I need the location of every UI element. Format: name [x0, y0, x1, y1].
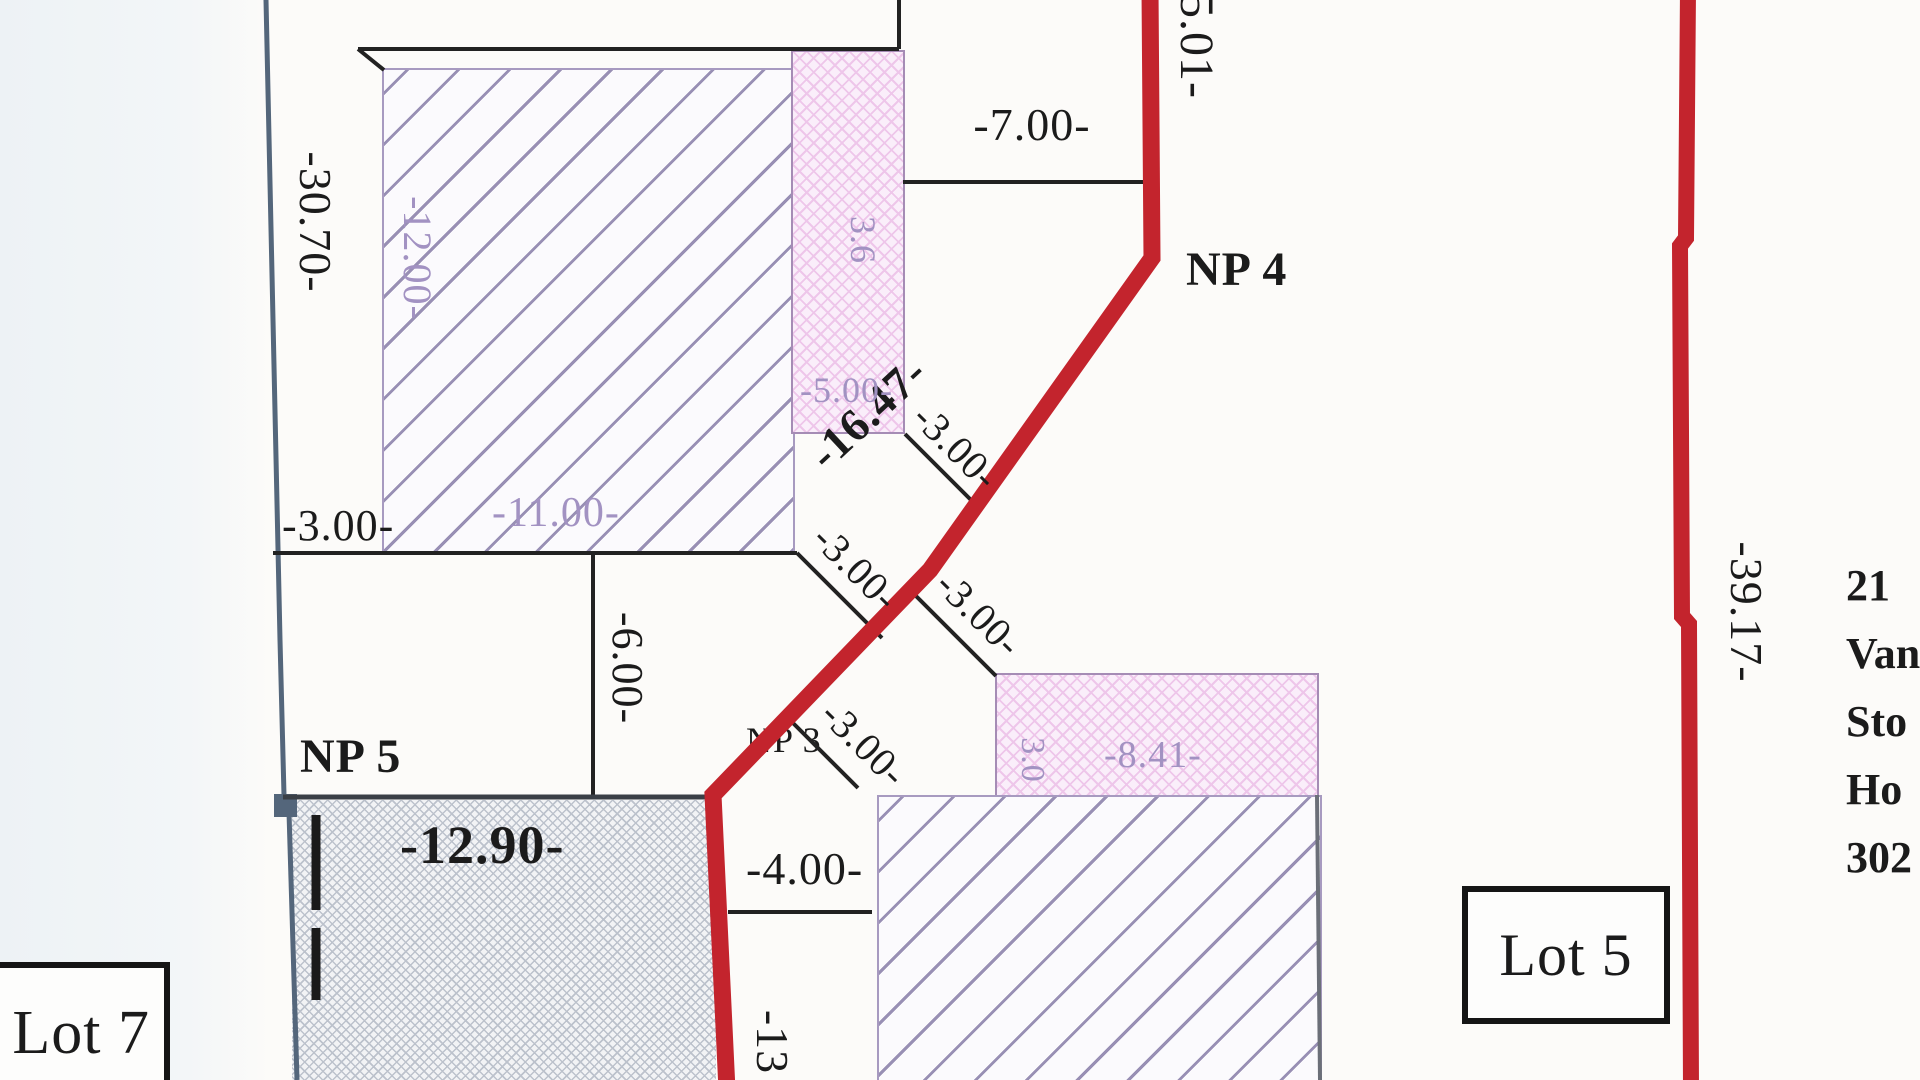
adjacent-text-line3: Sto: [1846, 688, 1920, 756]
adjacent-property-text: 21 Van Sto Ho 302: [1846, 552, 1920, 892]
dim-pink1-depth: 3.6: [845, 216, 881, 264]
adjacent-text-line4: Ho: [1846, 756, 1920, 824]
red-boundary-right: [1680, 0, 1691, 1080]
dim-building1-height: -12.00-: [397, 196, 437, 320]
lot7-box: Lot 7: [0, 962, 170, 1080]
left-boundary-line-lower: [289, 812, 297, 1080]
dim-building1-width: -11.00-: [492, 492, 620, 534]
red-boundary-left: [713, 0, 1152, 1080]
point-label-np4: NP 4: [1186, 246, 1287, 294]
dim-lower-offset: -4.00-: [746, 846, 863, 892]
plat-drawing: NP 3 -30.70- -12.00- -5.01- -7.00- NP 4 …: [0, 0, 1920, 1080]
dim-gray-width: -12.90-: [400, 818, 564, 872]
dim-upper-right-boundary: -5.01-: [1172, 0, 1220, 99]
adjacent-text-line5: 302: [1846, 824, 1920, 892]
adjacent-text-line2: Van: [1846, 620, 1920, 688]
left-boundary-line: [266, 0, 284, 795]
top-outline: [358, 0, 899, 70]
dim-pink2-width: -8.41-: [1104, 736, 1202, 774]
dim-left-boundary: -30.70-: [292, 151, 338, 292]
point-label-np5: NP 5: [300, 733, 401, 781]
dim-bottom-vertical: -13: [749, 1010, 795, 1074]
lower-hatch-right-edge: [1317, 795, 1320, 1080]
dim-left-offset: -3.00-: [282, 504, 394, 548]
dim-right-boundary: -39.17-: [1723, 541, 1769, 682]
lot7-label: Lot 7: [12, 1002, 150, 1064]
lot5-label: Lot 5: [1499, 925, 1632, 985]
dim-mid-vertical: -6.00-: [605, 612, 649, 724]
dim-pink1-width: -5.00-: [800, 372, 893, 408]
lot5-box: Lot 5: [1462, 886, 1670, 1024]
adjacent-text-line1: 21: [1846, 552, 1920, 620]
dim-pink2-depth: 3.0: [1015, 737, 1049, 783]
dim-top-width: -7.00-: [973, 102, 1090, 148]
